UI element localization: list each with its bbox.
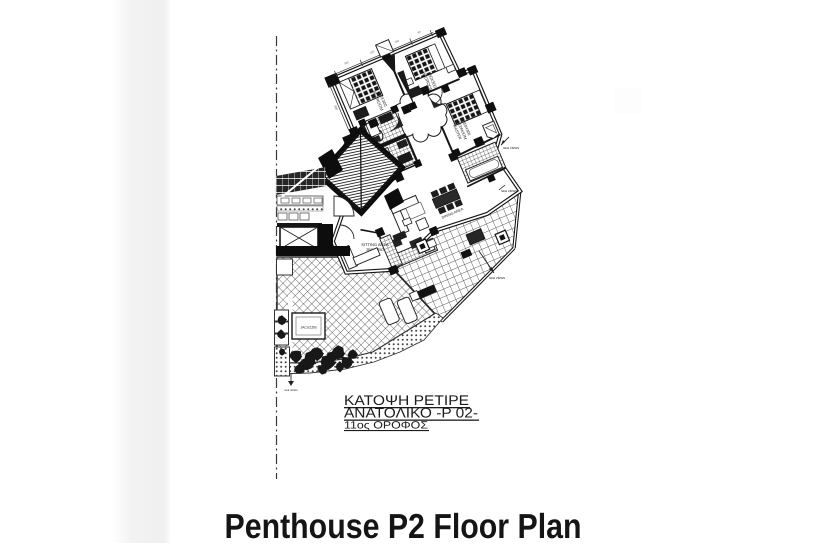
- svg-text:sea views: sea views: [503, 146, 519, 150]
- svg-text:11ος ΟΡΟΦΟΣ: 11ος ΟΡΟΦΟΣ: [344, 420, 429, 432]
- svg-text:Penthouse P2 Floor Plan: Penthouse P2 Floor Plan: [225, 507, 582, 543]
- svg-text:ΑΝΑΤΟΛΙΚΟ -Ρ 02-: ΑΝΑΤΟΛΙΚΟ -Ρ 02-: [344, 405, 478, 421]
- svg-text:JACUZZIB: JACUZZIB: [300, 326, 317, 330]
- svg-text:sea views: sea views: [284, 388, 298, 392]
- svg-text:sea views: sea views: [489, 276, 505, 280]
- svg-text:sea views: sea views: [501, 189, 517, 193]
